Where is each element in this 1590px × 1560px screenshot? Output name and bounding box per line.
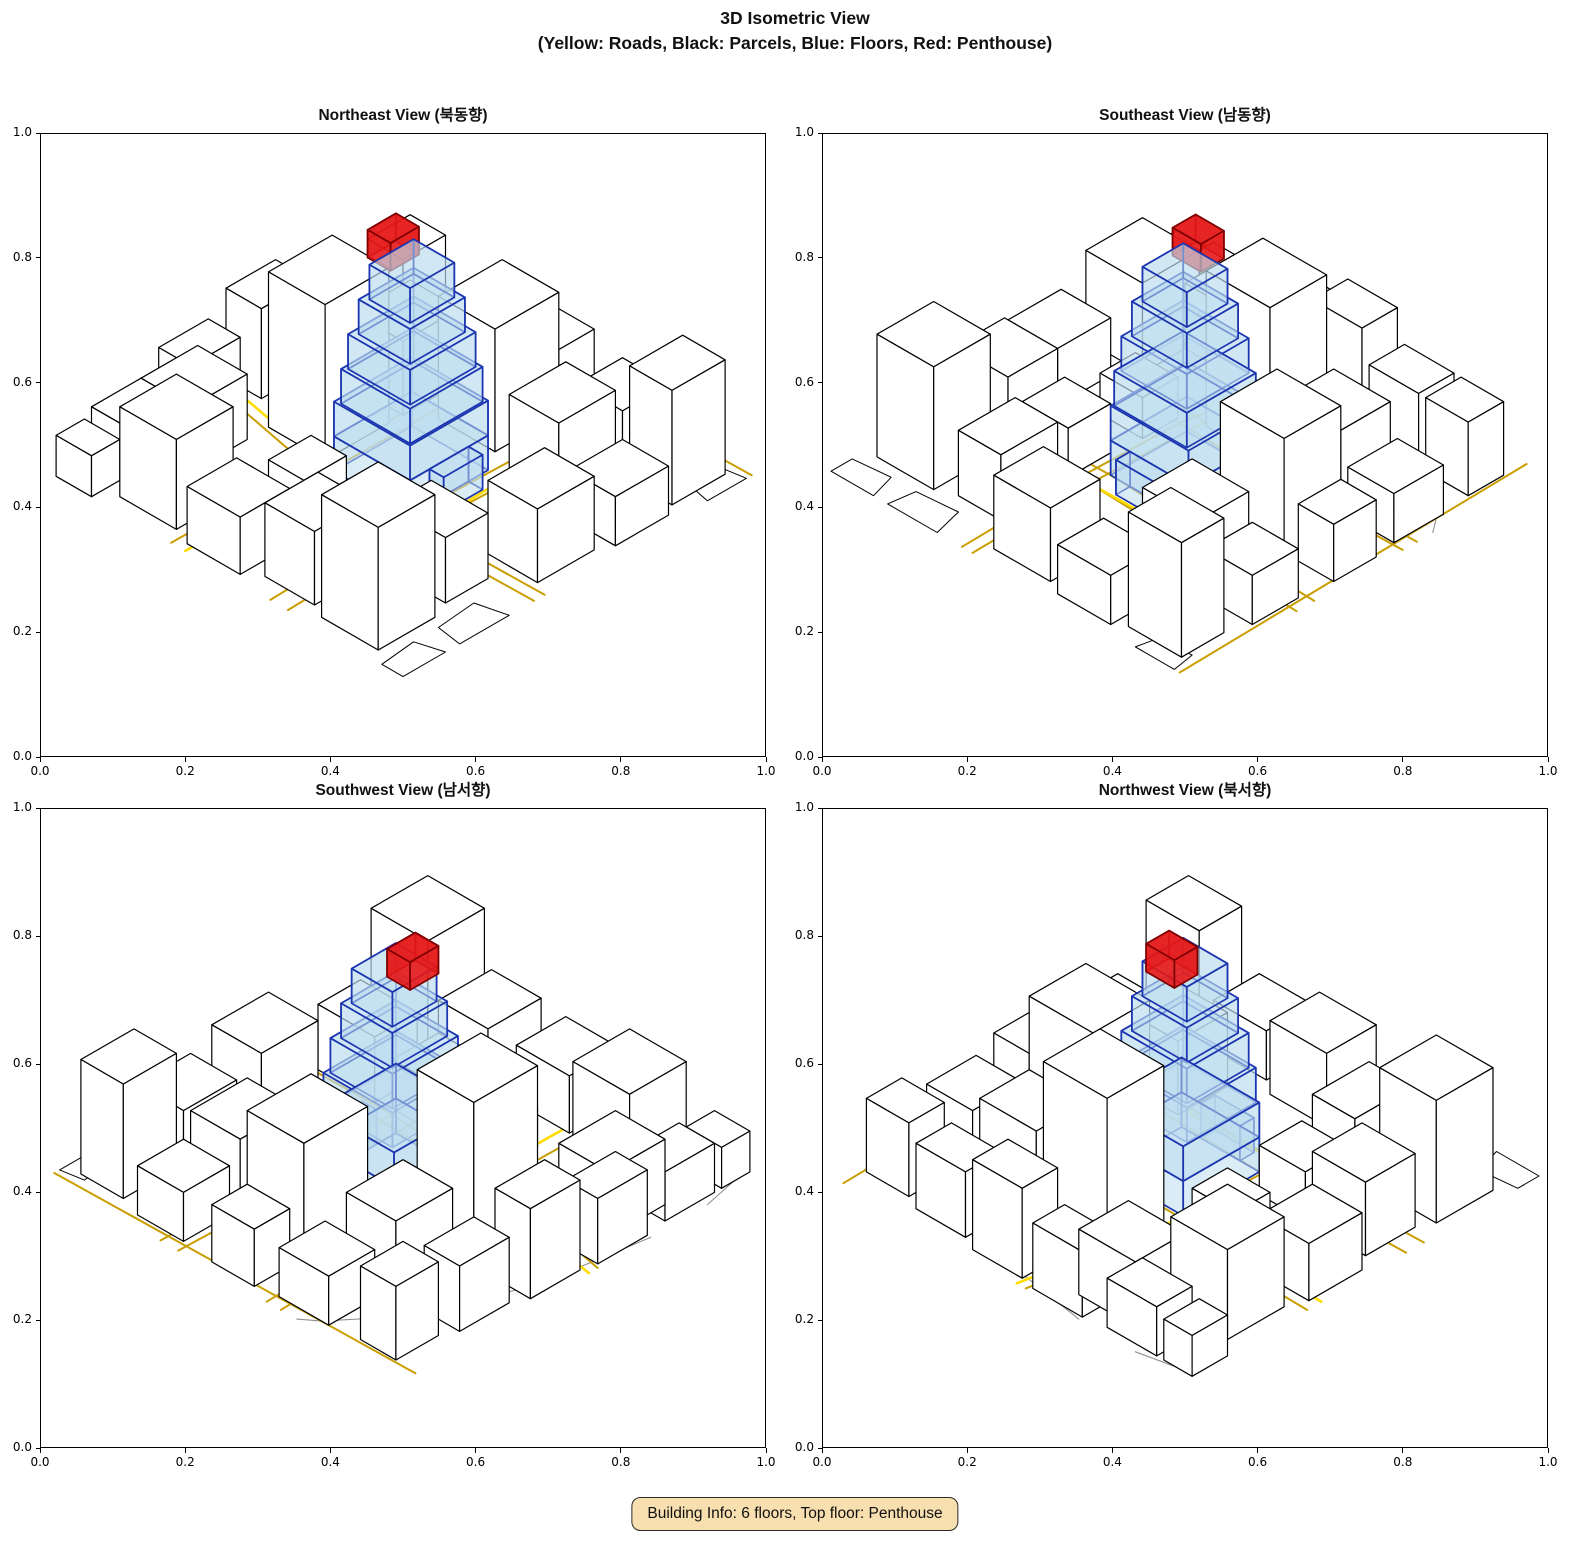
subplot-title-northeast: Northeast View (북동향) <box>40 103 766 125</box>
y-tick-mark <box>818 257 823 258</box>
x-tick-label: 0.8 <box>599 764 643 778</box>
y-tick-label: 0.8 <box>0 928 32 942</box>
y-tick-label: 0.4 <box>0 1184 32 1198</box>
x-tick-mark <box>620 1448 621 1453</box>
axes-southeast <box>822 133 1548 757</box>
x-tick-mark <box>620 757 621 762</box>
x-tick-mark <box>822 757 823 762</box>
building-parcel <box>361 1241 439 1360</box>
y-tick-mark <box>818 632 823 633</box>
y-tick-mark <box>818 133 823 134</box>
y-tick-label: 1.0 <box>0 800 32 814</box>
x-tick-mark <box>185 1448 186 1453</box>
x-tick-label: 0.4 <box>1090 764 1134 778</box>
building-parcel-face-front-right <box>1182 518 1224 657</box>
y-tick-label: 0.2 <box>0 624 32 638</box>
y-tick-mark <box>36 936 41 937</box>
building-parcel-face-front-left <box>81 1060 123 1199</box>
x-tick-mark <box>40 1448 41 1453</box>
y-tick-mark <box>818 382 823 383</box>
y-tick-label: 0.2 <box>774 1312 814 1326</box>
y-tick-label: 0.4 <box>0 499 32 513</box>
y-tick-label: 0.8 <box>774 250 814 264</box>
x-tick-label: 1.0 <box>744 764 788 778</box>
buildings-layer <box>56 213 725 650</box>
x-tick-label: 0.6 <box>454 1455 498 1469</box>
scene-southeast <box>823 134 1547 756</box>
scene-northwest <box>823 809 1547 1447</box>
y-tick-mark <box>36 1448 41 1449</box>
y-tick-mark <box>36 757 41 758</box>
x-tick-mark <box>1257 757 1258 762</box>
x-tick-mark <box>1112 757 1113 762</box>
buildings-layer <box>866 876 1493 1377</box>
x-tick-label: 0.6 <box>1236 764 1280 778</box>
y-tick-mark <box>36 1320 41 1321</box>
x-tick-mark <box>330 1448 331 1453</box>
x-tick-label: 0.2 <box>945 1455 989 1469</box>
scene-northeast <box>41 134 765 756</box>
y-tick-label: 0.2 <box>774 624 814 638</box>
x-tick-mark <box>1548 757 1549 762</box>
y-tick-label: 0.0 <box>0 1440 32 1454</box>
x-tick-label: 0.2 <box>163 1455 207 1469</box>
x-tick-label: 0.4 <box>1090 1455 1134 1469</box>
y-tick-label: 0.6 <box>774 1056 814 1070</box>
x-tick-mark <box>1257 1448 1258 1453</box>
x-tick-label: 0.0 <box>18 1455 62 1469</box>
x-tick-label: 0.0 <box>800 1455 844 1469</box>
x-tick-mark <box>475 1448 476 1453</box>
x-tick-label: 0.2 <box>945 764 989 778</box>
x-tick-label: 1.0 <box>1526 764 1570 778</box>
y-tick-mark <box>36 1064 41 1065</box>
scene-southwest <box>41 809 765 1447</box>
x-tick-label: 0.0 <box>18 764 62 778</box>
y-tick-mark <box>818 1320 823 1321</box>
y-tick-mark <box>818 936 823 937</box>
subplot-title-southeast: Southeast View (남동향) <box>822 103 1548 125</box>
y-tick-label: 0.0 <box>0 749 32 763</box>
x-tick-mark <box>1548 1448 1549 1453</box>
y-tick-mark <box>36 382 41 383</box>
x-tick-label: 0.8 <box>599 1455 643 1469</box>
building-parcel-face-front-left <box>269 272 326 460</box>
figure-title-line2: (Yellow: Roads, Black: Parcels, Blue: Fl… <box>0 33 1590 54</box>
ground-parcel <box>831 459 891 496</box>
building-info-badge: Building Info: 6 floors, Top floor: Pent… <box>631 1497 958 1531</box>
x-tick-mark <box>1112 1448 1113 1453</box>
buildings-layer <box>81 876 750 1360</box>
x-tick-label: 1.0 <box>744 1455 788 1469</box>
y-tick-label: 0.0 <box>774 1440 814 1454</box>
figure-title-line1: 3D Isometric View <box>0 8 1590 29</box>
y-tick-label: 0.4 <box>774 1184 814 1198</box>
x-tick-mark <box>766 757 767 762</box>
y-tick-label: 0.6 <box>0 1056 32 1070</box>
x-tick-label: 0.6 <box>454 764 498 778</box>
subplot-northeast: Northeast View (북동향) 0.00.20.40.60.81.00… <box>40 133 766 757</box>
y-tick-mark <box>36 133 41 134</box>
ground-parcel <box>438 603 509 644</box>
x-tick-mark <box>1402 1448 1403 1453</box>
x-tick-label: 0.2 <box>163 764 207 778</box>
subplot-title-northwest: Northwest View (북서향) <box>822 778 1548 800</box>
figure-canvas: { "figure": { "title_line1": "3D Isometr… <box>0 0 1590 1560</box>
y-tick-mark <box>818 1448 823 1449</box>
x-tick-mark <box>475 757 476 762</box>
y-tick-mark <box>818 757 823 758</box>
y-tick-label: 1.0 <box>774 125 814 139</box>
y-tick-mark <box>818 1064 823 1065</box>
y-tick-label: 1.0 <box>0 125 32 139</box>
building-parcel <box>1128 488 1224 658</box>
x-tick-mark <box>766 1448 767 1453</box>
y-tick-label: 0.2 <box>0 1312 32 1326</box>
axes-northwest <box>822 808 1548 1448</box>
y-tick-mark <box>36 507 41 508</box>
x-tick-mark <box>822 1448 823 1453</box>
x-tick-label: 0.4 <box>308 764 352 778</box>
ground-parcel <box>382 642 446 677</box>
x-tick-label: 0.8 <box>1381 764 1425 778</box>
x-tick-label: 1.0 <box>1526 1455 1570 1469</box>
building-parcel <box>488 448 594 583</box>
x-tick-mark <box>330 757 331 762</box>
y-tick-label: 0.6 <box>0 375 32 389</box>
buildings-layer <box>877 215 1504 658</box>
y-tick-label: 0.8 <box>774 928 814 942</box>
x-tick-label: 0.4 <box>308 1455 352 1469</box>
x-tick-mark <box>40 757 41 762</box>
subplot-northwest: Northwest View (북서향) 0.00.20.40.60.81.00… <box>822 808 1548 1448</box>
x-tick-label: 0.8 <box>1381 1455 1425 1469</box>
ground-parcel <box>888 492 959 533</box>
y-tick-mark <box>818 507 823 508</box>
y-tick-mark <box>36 257 41 258</box>
x-tick-label: 0.0 <box>800 764 844 778</box>
subplot-southeast: Southeast View (남동향) 0.00.20.40.60.81.00… <box>822 133 1548 757</box>
subplot-title-southwest: Southwest View (남서향) <box>40 778 766 800</box>
x-tick-label: 0.6 <box>1236 1455 1280 1469</box>
y-tick-label: 0.8 <box>0 250 32 264</box>
x-tick-mark <box>967 1448 968 1453</box>
axes-northeast <box>40 133 766 757</box>
building-parcel <box>322 462 435 650</box>
x-tick-mark <box>1402 757 1403 762</box>
y-tick-label: 1.0 <box>774 800 814 814</box>
subplot-southwest: Southwest View (남서향) 0.00.20.40.60.81.00… <box>40 808 766 1448</box>
y-tick-mark <box>36 808 41 809</box>
x-tick-mark <box>185 757 186 762</box>
y-tick-label: 0.4 <box>774 499 814 513</box>
axes-southwest <box>40 808 766 1448</box>
y-tick-mark <box>36 1192 41 1193</box>
y-tick-label: 0.0 <box>774 749 814 763</box>
x-tick-mark <box>967 757 968 762</box>
y-tick-mark <box>818 808 823 809</box>
y-tick-mark <box>818 1192 823 1193</box>
y-tick-label: 0.6 <box>774 375 814 389</box>
y-tick-mark <box>36 632 41 633</box>
